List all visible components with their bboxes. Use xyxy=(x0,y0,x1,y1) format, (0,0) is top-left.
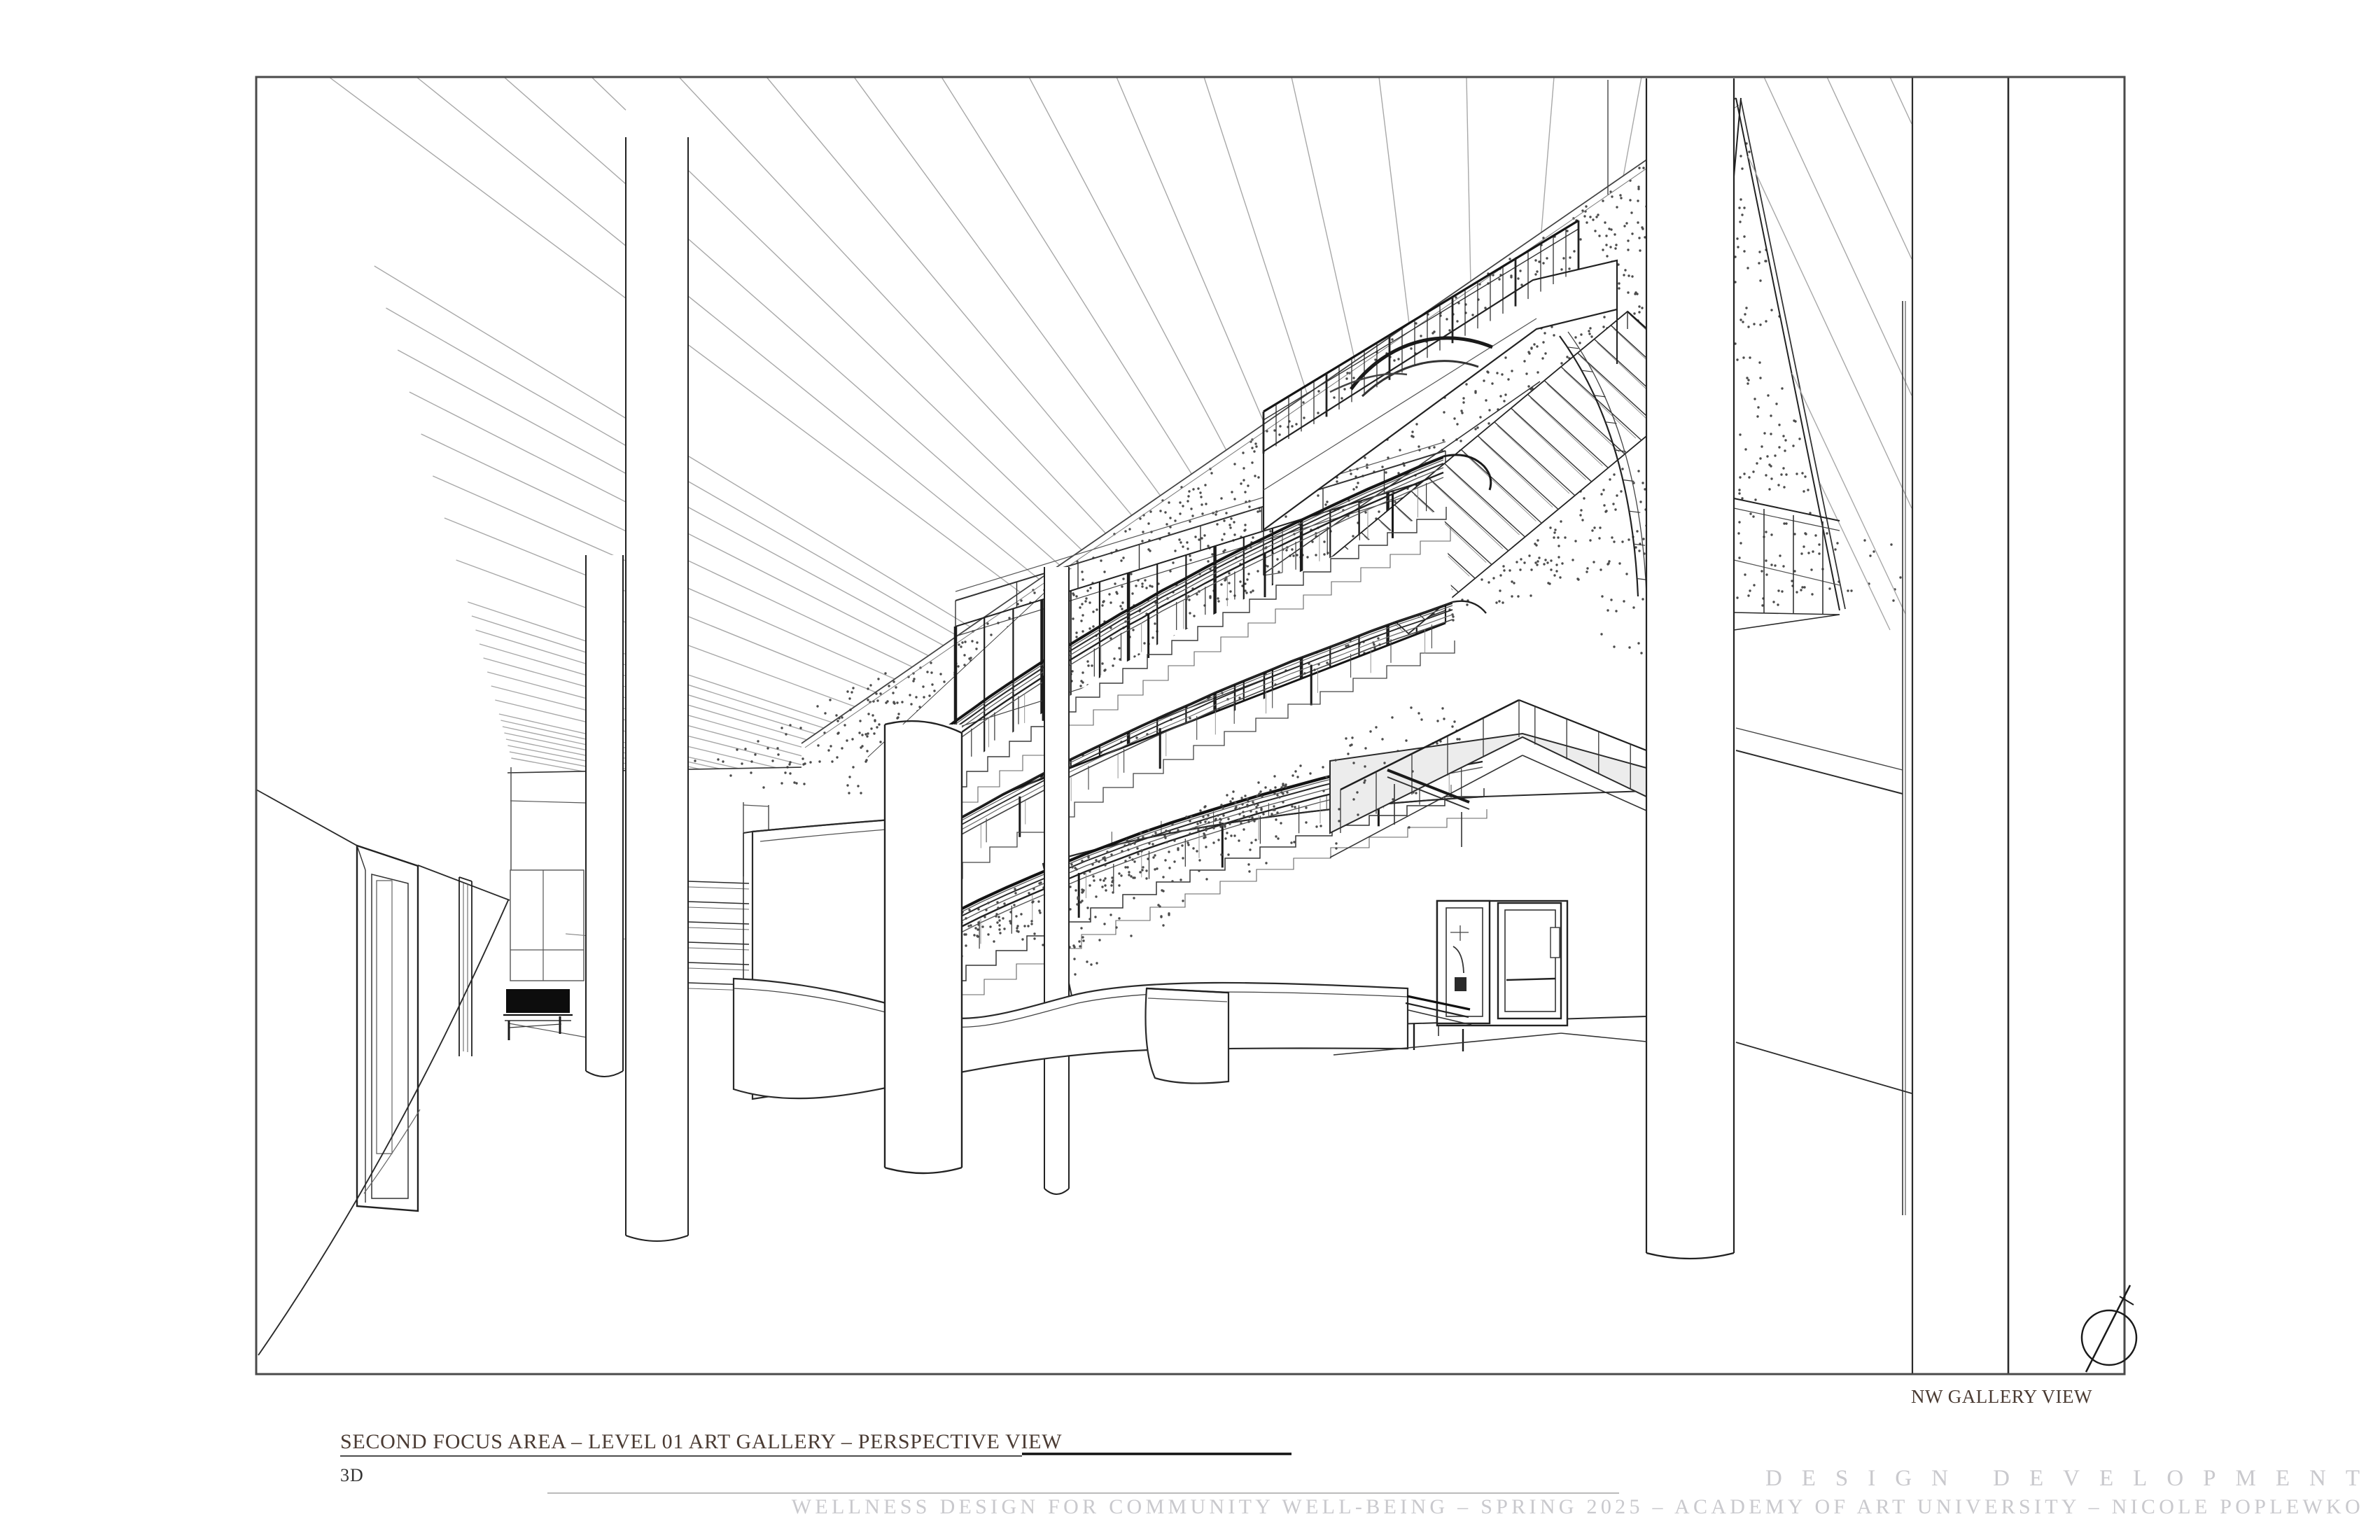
svg-text:DESIGN DEVELOPMENT: DESIGN DEVELOPMENT xyxy=(1765,1466,2379,1491)
svg-text:SECOND FOCUS AREA – LEVEL 01 A: SECOND FOCUS AREA – LEVEL 01 ART GALLERY… xyxy=(340,1430,1062,1453)
svg-text:NW GALLERY VIEW: NW GALLERY VIEW xyxy=(1911,1386,2092,1407)
svg-text:WELLNESS DESIGN FOR COMMUNITY: WELLNESS DESIGN FOR COMMUNITY WELL-BEING… xyxy=(792,1495,2364,1518)
svg-text:3D: 3D xyxy=(340,1465,364,1485)
